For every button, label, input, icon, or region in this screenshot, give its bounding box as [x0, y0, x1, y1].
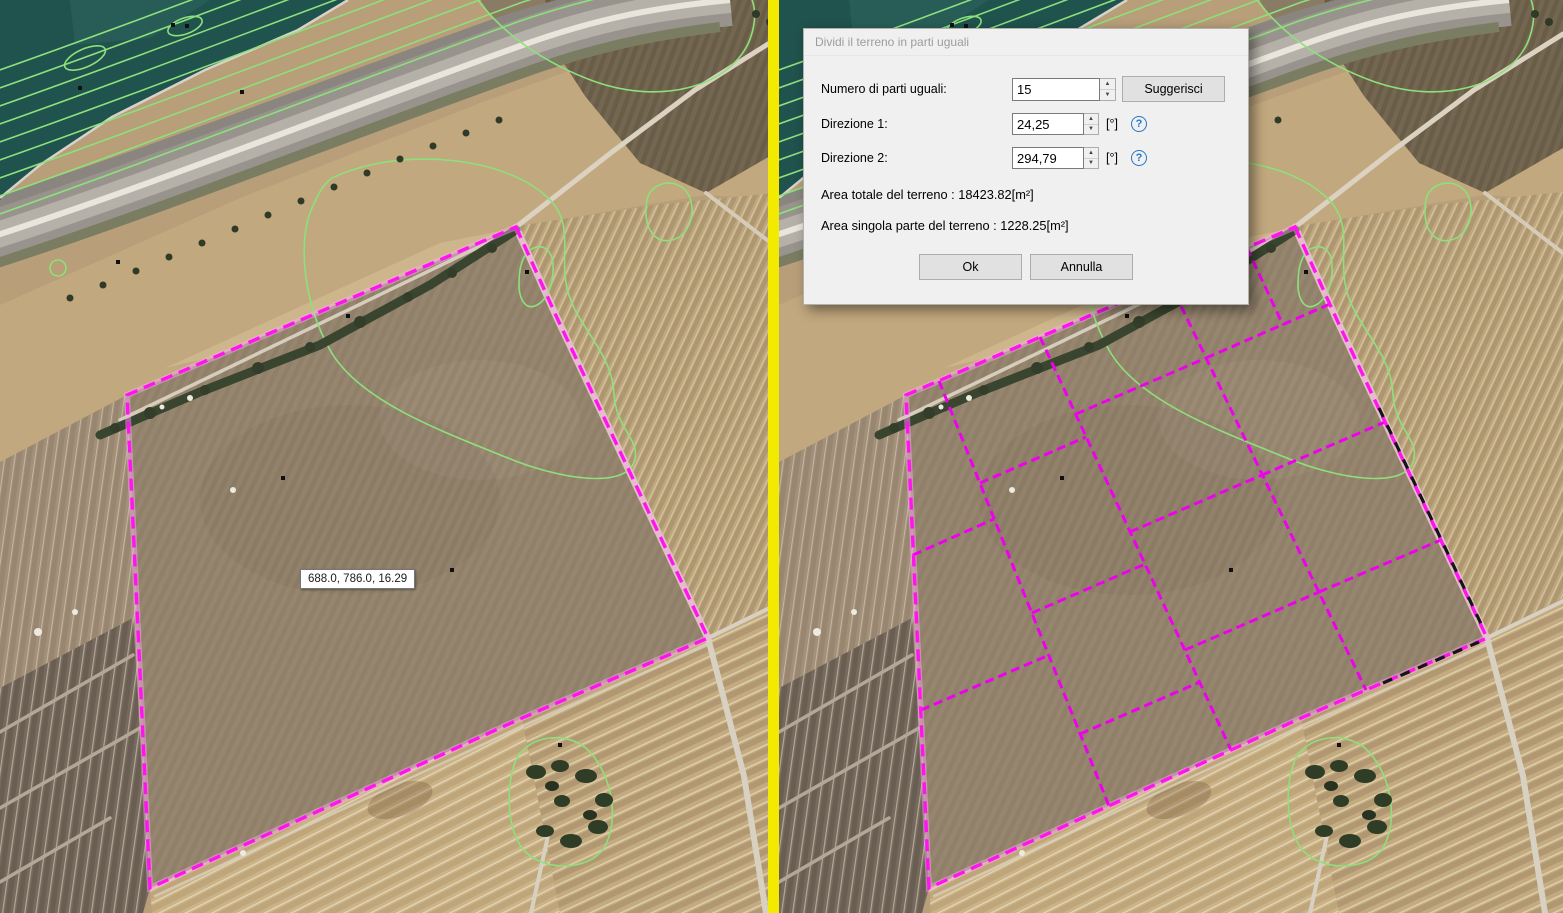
direction1-help-icon[interactable]: ?	[1131, 116, 1147, 132]
direction2-spinner: ▲ ▼	[1084, 147, 1099, 169]
spinner-up-icon[interactable]: ▲	[1100, 79, 1115, 90]
app-window: 688.0, 786.0, 16.29 Dividi il terreno in…	[0, 0, 1563, 913]
soil-light	[380, 360, 580, 480]
direction2-input[interactable]	[1012, 147, 1084, 169]
pane-splitter[interactable]	[768, 0, 779, 913]
map-pane-before[interactable]: 688.0, 786.0, 16.29	[0, 0, 768, 913]
dialog-titlebar[interactable]: Dividi il terreno in parti uguali	[804, 29, 1248, 56]
suggest-button[interactable]: Suggerisci	[1122, 76, 1225, 102]
spinner-down-icon[interactable]: ▼	[1084, 159, 1098, 169]
spinner-down-icon[interactable]: ▼	[1100, 90, 1115, 100]
direction2-label: Direzione 2:	[821, 151, 888, 166]
direction1-group: ▲ ▼	[1012, 113, 1099, 135]
direction1-label: Direzione 1:	[821, 117, 888, 132]
parts-count-input[interactable]	[1012, 78, 1100, 101]
total-area-text: Area totale del terreno : 18423.82[m²]	[821, 187, 1034, 202]
map-pane-after[interactable]: Dividi il terreno in parti uguali Numero…	[779, 0, 1563, 913]
cancel-button[interactable]: Annulla	[1030, 254, 1133, 280]
divide-terrain-dialog: Dividi il terreno in parti uguali Numero…	[803, 28, 1249, 305]
parts-count-label: Numero di parti uguali:	[821, 82, 947, 97]
spinner-down-icon[interactable]: ▼	[1084, 125, 1098, 135]
parts-count-spinner: ▲ ▼	[1100, 78, 1116, 101]
direction1-input[interactable]	[1012, 113, 1084, 135]
ok-button[interactable]: Ok	[919, 254, 1022, 280]
spinner-up-icon[interactable]: ▲	[1084, 114, 1098, 125]
spinner-up-icon[interactable]: ▲	[1084, 148, 1098, 159]
part-area-text: Area singola parte del terreno : 1228.25…	[821, 218, 1069, 233]
direction2-unit: [°]	[1106, 151, 1118, 165]
parts-count-group: ▲ ▼	[1012, 78, 1116, 101]
direction2-help-icon[interactable]: ?	[1131, 150, 1147, 166]
direction2-group: ▲ ▼	[1012, 147, 1099, 169]
coordinate-tooltip: 688.0, 786.0, 16.29	[300, 569, 415, 589]
satellite-scene-before	[0, 0, 768, 913]
direction1-unit: [°]	[1106, 117, 1118, 131]
direction1-spinner: ▲ ▼	[1084, 113, 1099, 135]
